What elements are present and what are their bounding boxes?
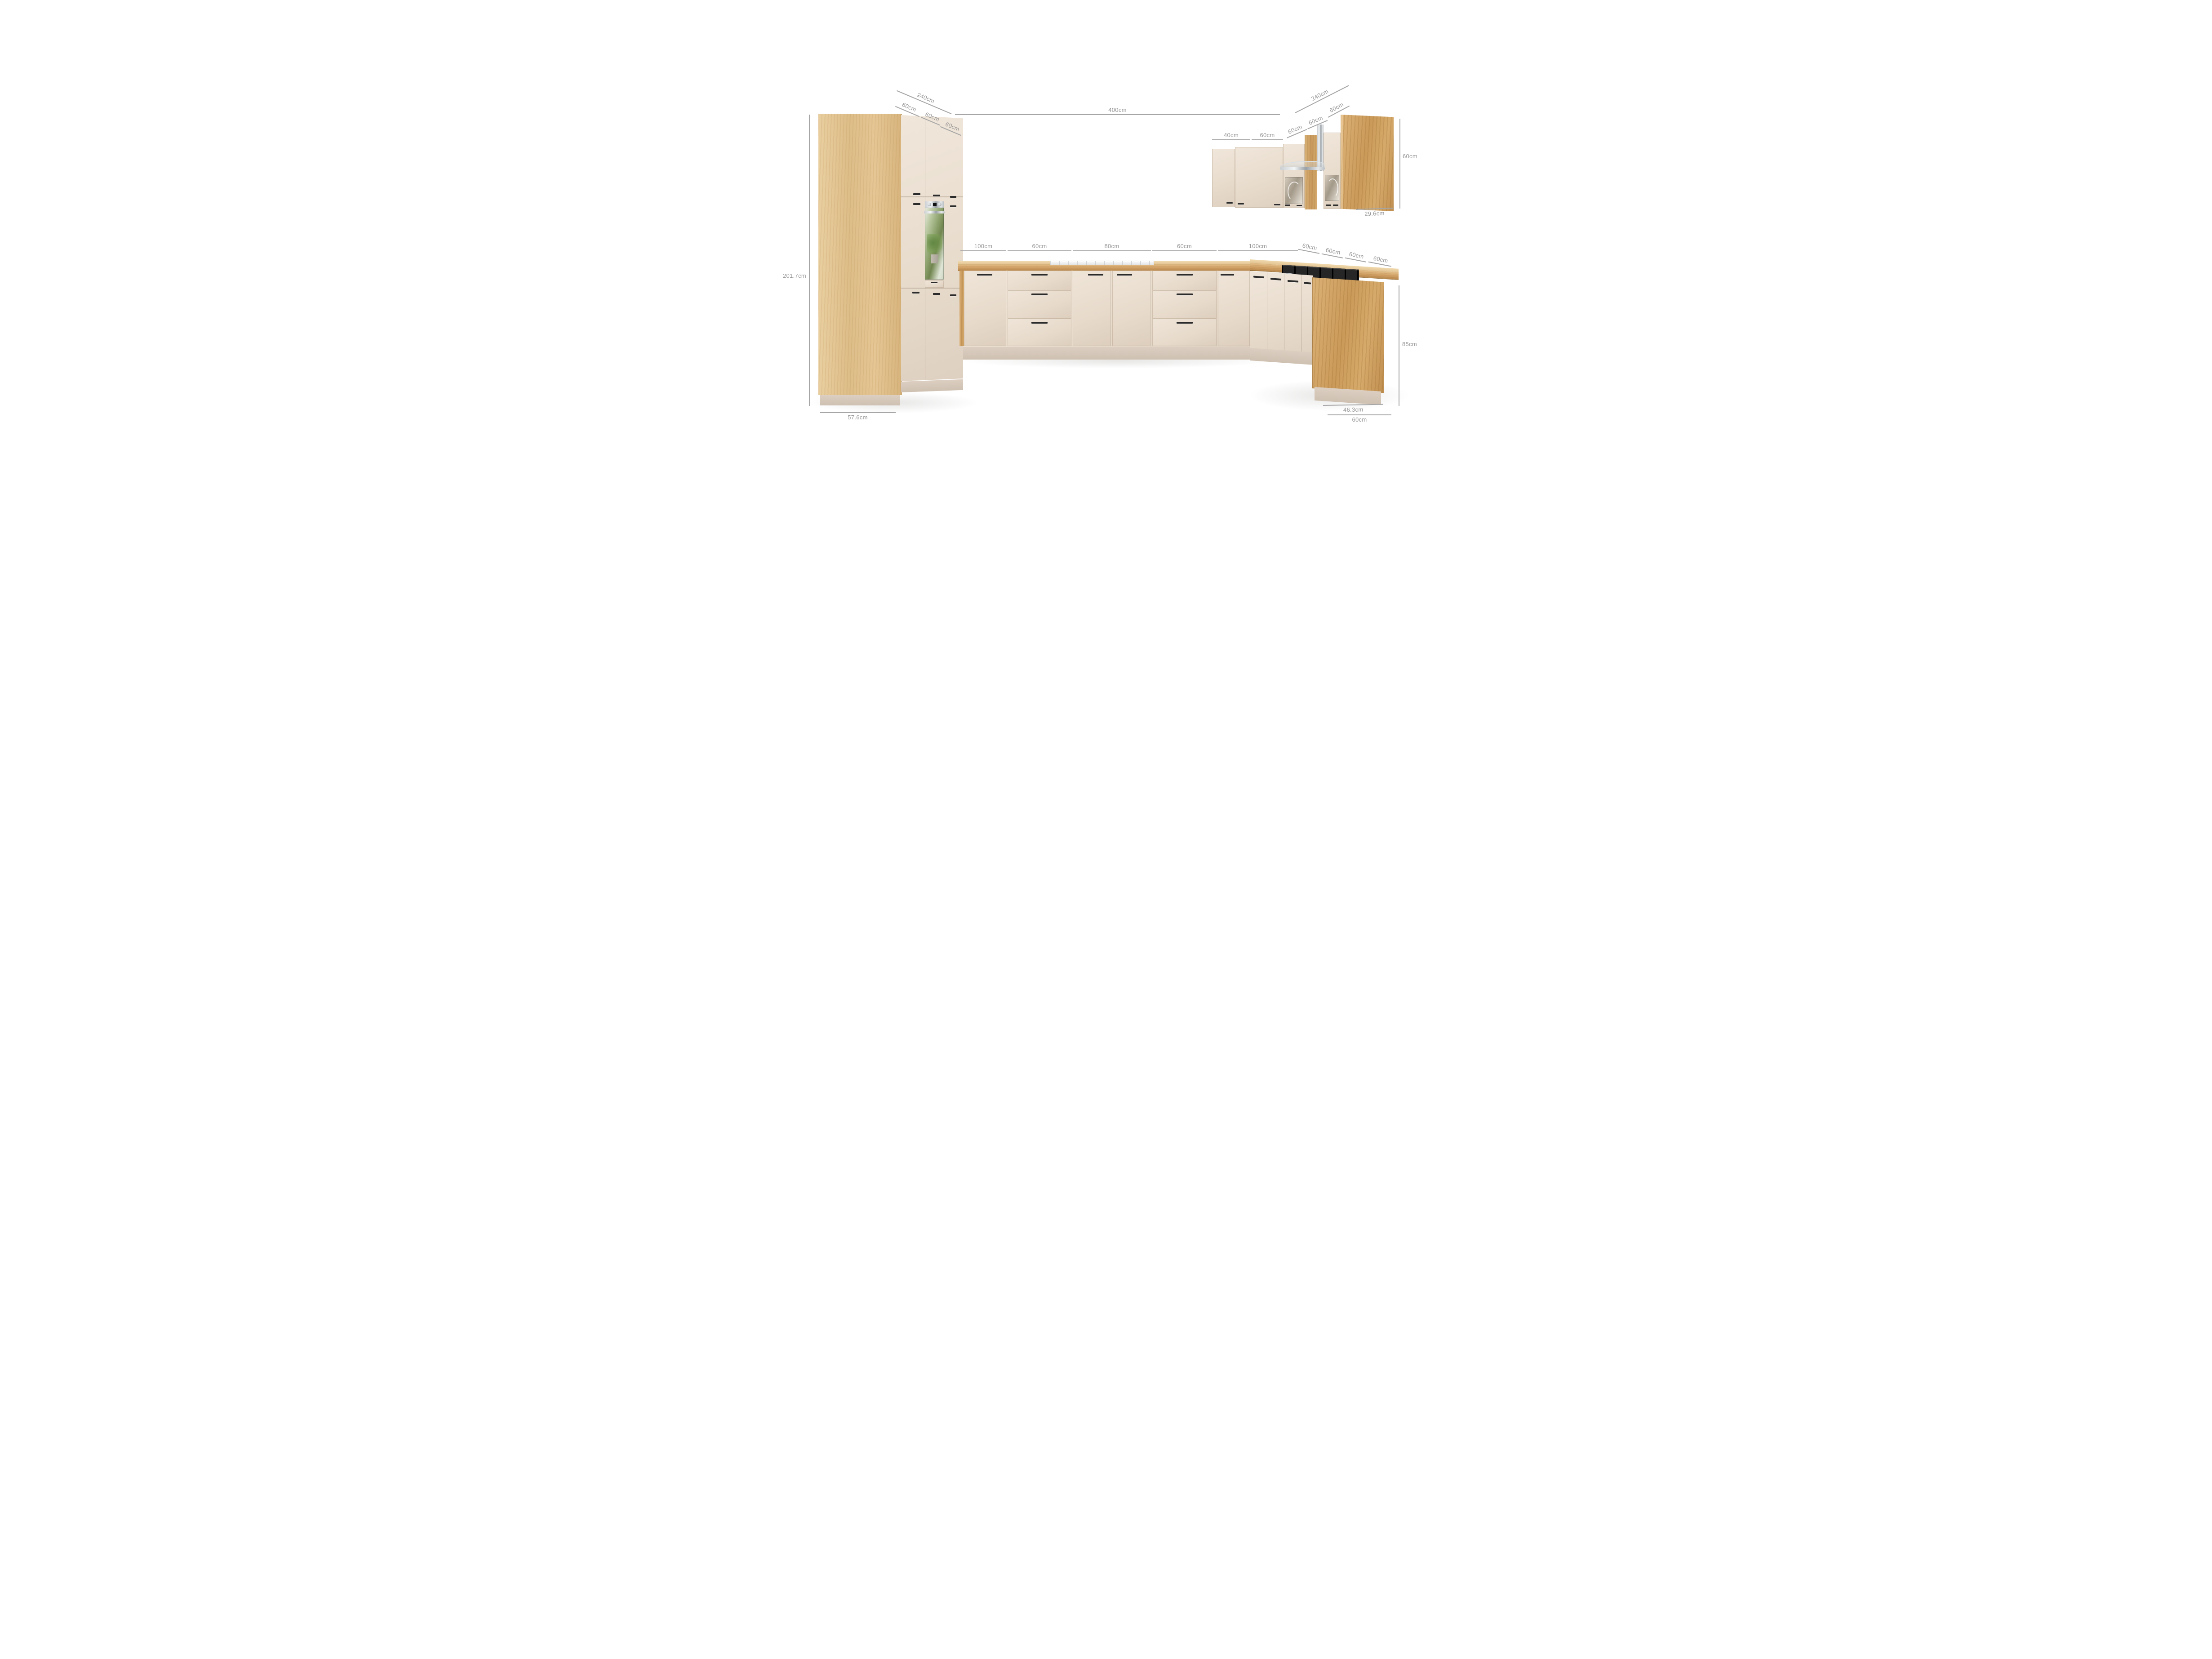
door-handle xyxy=(1117,274,1132,276)
dim-wall-40: 40cm xyxy=(1212,132,1250,140)
right-base-front xyxy=(1250,271,1313,361)
countertop-front-edge xyxy=(958,264,1265,271)
drawer-handle xyxy=(931,282,937,283)
dim-base-60b: 60cm xyxy=(1152,243,1217,251)
tall-unit-plinth xyxy=(820,395,900,405)
glass-door-panel xyxy=(1325,175,1339,201)
oven-knob xyxy=(938,203,942,206)
dim-wall-depth: 29.6cm xyxy=(1356,208,1393,217)
door-handle xyxy=(1221,274,1234,276)
door-handle xyxy=(933,195,940,196)
door-handle xyxy=(950,205,956,207)
base-door-corner xyxy=(1218,271,1250,346)
dim-front-run-total: 400cm xyxy=(955,107,1280,115)
dim-wall-60: 60cm xyxy=(1252,132,1283,140)
tall-unit-front xyxy=(901,115,963,381)
dim-label: 80cm xyxy=(1105,243,1119,249)
dim-peninsula-depth: 60cm xyxy=(1328,414,1391,423)
wall-cabinet-wood-tall xyxy=(1341,115,1394,211)
drawer-handle xyxy=(1177,322,1193,324)
peninsula-end-panel xyxy=(1312,277,1384,393)
dim-base-100b: 100cm xyxy=(1218,243,1298,251)
door-handle xyxy=(933,293,940,295)
dim-right-base-seg2: 60cm xyxy=(1322,246,1345,258)
drawer-handle xyxy=(1031,274,1048,276)
door-handle xyxy=(1288,280,1298,283)
dim-base-100a: 100cm xyxy=(960,243,1006,251)
door-handle xyxy=(950,294,956,296)
dim-label: 46.3cm xyxy=(1343,406,1364,413)
door-gap xyxy=(901,288,963,289)
dim-base-60a: 60cm xyxy=(1008,243,1071,251)
dim-line xyxy=(1152,250,1217,251)
dim-line-base-height xyxy=(1399,285,1399,406)
base-door-80-right xyxy=(1112,271,1150,346)
dim-label: 60cm xyxy=(1352,417,1367,423)
door-handle xyxy=(1238,203,1244,205)
door-gap xyxy=(1301,275,1301,360)
oven-glass-door xyxy=(925,208,944,280)
base-door-100 xyxy=(964,271,1006,346)
dim-label: 60cm xyxy=(1260,132,1275,138)
dim-right-base-seg4: 60cm xyxy=(1368,254,1393,267)
wall-cabinet-glass-right xyxy=(1324,133,1341,209)
base-door-80-left xyxy=(1073,271,1111,346)
wall-cabinet-glass-left xyxy=(1283,144,1305,208)
dim-line xyxy=(1218,250,1298,251)
glass-door-panel xyxy=(1285,177,1303,204)
oven-handle xyxy=(924,211,945,213)
door-handle xyxy=(913,203,920,205)
dim-right-base-seg3: 60cm xyxy=(1345,250,1368,262)
dim-line xyxy=(955,114,1280,115)
drawer-handle xyxy=(1177,294,1193,295)
plant-reflection xyxy=(927,234,942,256)
wall-cabinet-60 xyxy=(1235,147,1283,208)
door-handle xyxy=(1304,282,1311,284)
flush-sink-drainer xyxy=(1050,261,1154,265)
dim-label: 60cm xyxy=(1287,124,1303,135)
dim-line xyxy=(820,412,896,413)
dim-label: 100cm xyxy=(974,243,993,249)
dim-base-80: 80cm xyxy=(1073,243,1151,251)
wall-wood-panel xyxy=(1305,135,1317,209)
plant-pot-reflection xyxy=(931,254,938,263)
door-handle xyxy=(977,274,992,276)
hood-canopy-bar xyxy=(1280,167,1325,170)
oven-display xyxy=(933,203,937,206)
dim-tall-height: 201.7cm xyxy=(782,273,806,279)
drawer-handle xyxy=(1031,322,1048,324)
dim-label: 100cm xyxy=(1249,243,1267,249)
dim-wall-height: 60cm xyxy=(1403,153,1417,159)
door-gap xyxy=(1284,273,1284,359)
dim-label: 400cm xyxy=(1108,107,1127,113)
door-handle xyxy=(1253,276,1264,279)
dim-label: 60cm xyxy=(1177,243,1192,249)
dim-line xyxy=(1008,250,1071,251)
kitchen-dimension-diagram: 240cm 60cm 60cm 60cm 400cm 240cm 60cm 40… xyxy=(759,0,1453,521)
dim-wall-diag1: 60cm xyxy=(1284,122,1307,138)
dim-base-height: 85cm xyxy=(1402,341,1417,347)
dim-label: 40cm xyxy=(1224,132,1239,138)
dim-label: 60cm xyxy=(1032,243,1047,249)
dim-label: 57.6cm xyxy=(848,414,867,420)
door-handle xyxy=(1333,205,1338,206)
oven-knob xyxy=(928,203,931,206)
dim-line xyxy=(1212,139,1250,140)
tall-unit-plinth-front xyxy=(901,379,963,392)
door-handle xyxy=(1285,205,1290,206)
dim-wall-diag2: 60cm xyxy=(1305,113,1328,129)
drawer-handle xyxy=(1177,274,1193,276)
door-handle xyxy=(1274,204,1280,205)
door-handle xyxy=(1226,202,1233,204)
dim-line-tall-height xyxy=(809,115,810,406)
door-handle xyxy=(1270,278,1281,280)
door-gap xyxy=(944,115,944,381)
door-handle xyxy=(950,196,956,198)
dim-line xyxy=(1252,139,1283,140)
oven-control-panel xyxy=(925,201,944,208)
tall-unit-side-panel xyxy=(818,114,902,395)
door-gap xyxy=(1259,147,1259,208)
dim-line xyxy=(1328,414,1391,415)
plate-reflection xyxy=(1288,182,1301,201)
dim-line xyxy=(1073,250,1151,251)
door-handle xyxy=(1088,274,1103,276)
dim-peninsula-panel-depth: 46.3cm xyxy=(1323,404,1383,413)
dim-right-base-seg1: 60cm xyxy=(1298,242,1321,254)
door-handle xyxy=(1297,205,1302,206)
dim-tall-depth: 57.6cm xyxy=(820,412,896,420)
dim-line xyxy=(960,250,1006,251)
dim-label: 60cm xyxy=(901,102,917,113)
wall-cabinet-40 xyxy=(1212,149,1235,207)
dim-label: 29.6cm xyxy=(1364,210,1385,217)
door-handle xyxy=(1326,205,1331,206)
base-run-plinth xyxy=(963,347,1250,360)
plate-reflection xyxy=(1327,178,1338,198)
door-handle xyxy=(913,193,920,195)
drawer-handle xyxy=(1031,294,1048,295)
corner-filler-strip xyxy=(959,271,964,346)
door-handle xyxy=(912,292,919,294)
door-gap xyxy=(1267,272,1267,358)
dim-line-wall-height xyxy=(1399,119,1400,209)
